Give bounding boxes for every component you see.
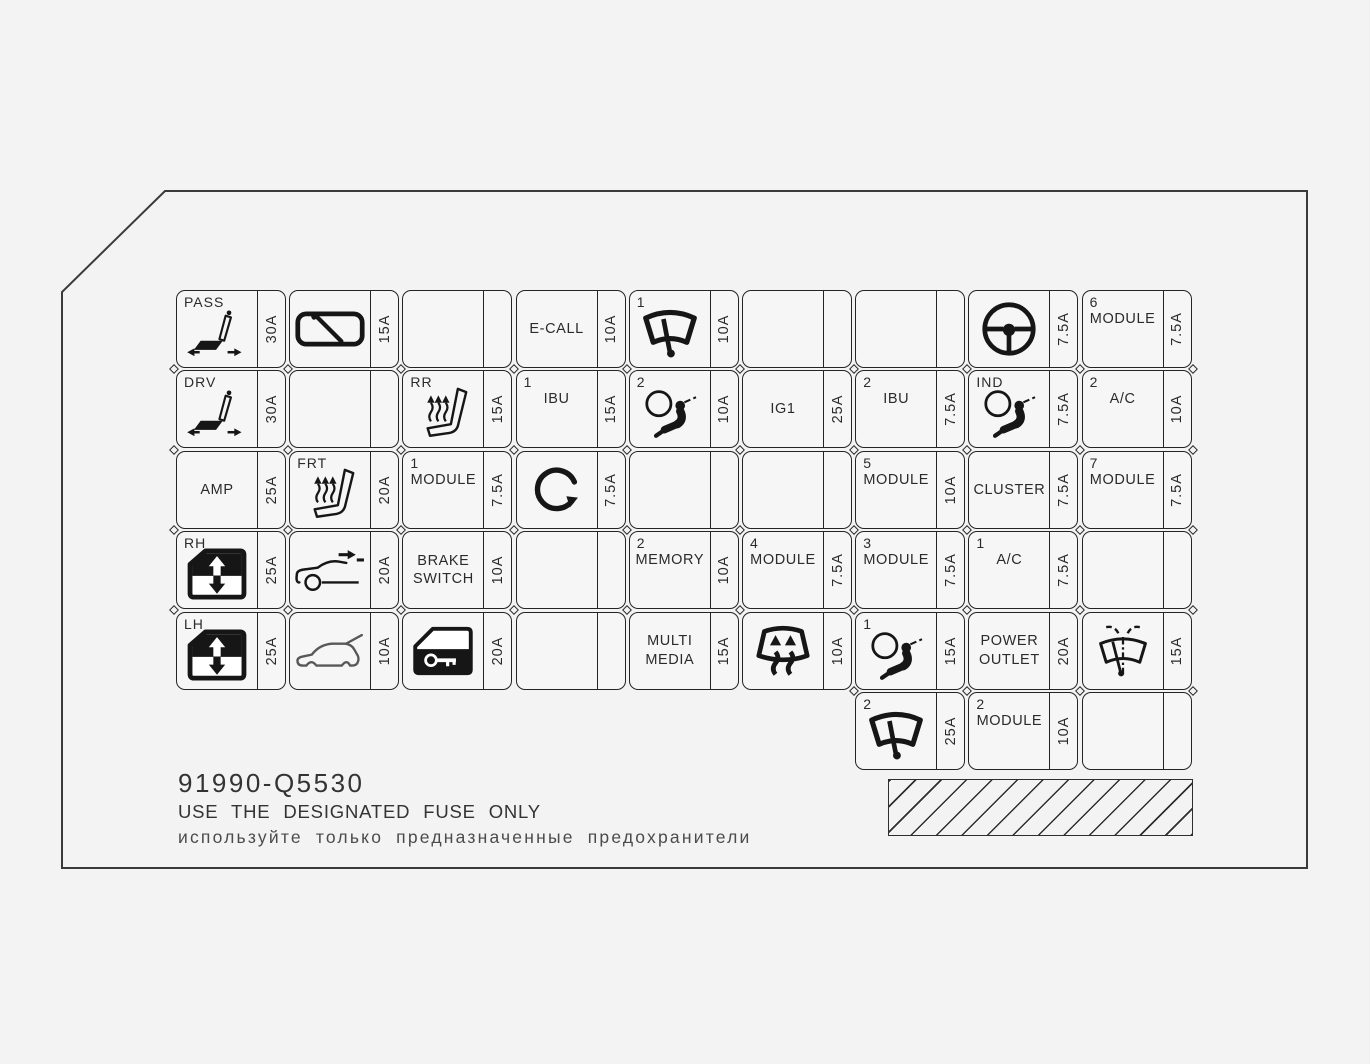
fuse-label-area: IG1 [743,371,823,447]
fuse-label: IBU [883,390,909,408]
fuse-position-tag: 4 [750,535,759,551]
fuse-amp-strip [823,291,851,367]
fuse-amp-strip: 7.5A [936,371,964,447]
fuse-cell: 20A [289,531,399,609]
fuse-amp-strip: 7.5A [1049,291,1077,367]
heated-seat-icon [304,467,356,521]
fuse-position-tag: IND [976,374,1003,390]
fuse-cell: POWER OUTLET20A [968,612,1078,690]
door-lock-icon [412,626,474,676]
fuse-amp-rating: 15A [603,395,619,424]
fuse-amp-strip [597,613,625,689]
airbag-icon [641,387,699,439]
fuse-cell: AMP25A [176,451,286,529]
fuse-position-tag: RR [410,374,432,390]
fuse-amp-strip: 25A [257,532,285,608]
fuse-amp-rating: 15A [716,636,732,665]
fuse-cell: 7.5A [968,290,1078,368]
rotation-arrow-icon [532,465,582,515]
fuse-cell: 15A [1082,612,1192,690]
fuse-amp-strip: 15A [597,371,625,447]
fuse-cell: 5MODULE10A [855,451,965,529]
fuse-cell: RH 25A [176,531,286,609]
fuse-cell: 7MODULE7.5A [1082,451,1192,529]
fuse-cell: 4MODULE7.5A [742,531,852,609]
fuse-cell [516,531,626,609]
fuse-label-area [403,291,483,367]
fuse-label-area: POWER OUTLET [969,613,1049,689]
power-window-icon [187,548,247,600]
fuse-cell: 1A/C7.5A [968,531,1078,609]
fuse-amp-strip: 10A [710,532,738,608]
fuse-cell: 1MODULE7.5A [402,451,512,529]
fuse-label: MODULE [1090,471,1156,489]
fuse-amp-rating: 25A [264,556,280,585]
fuse-amp-strip: 20A [370,452,398,528]
fuse-cell: 2 10A [629,370,739,448]
fuse-cell: 20A [402,612,512,690]
fuse-position-tag: 1 [863,616,872,632]
fuse-position-tag: 7 [1090,455,1099,471]
fuse-label-area [1083,693,1163,769]
fuse-amp-rating: 7.5A [603,473,619,507]
fuse-label: MODULE [411,471,477,489]
fuse-amp-rating: 7.5A [830,553,846,587]
rear-defrost-icon [753,624,813,678]
fuse-amp-strip [936,291,964,367]
fuse-cell [742,451,852,529]
fuse-amp-rating: 15A [943,636,959,665]
fuse-amp-strip: 10A [1049,693,1077,769]
fuse-label-area [290,613,370,689]
fuse-label-area [517,452,597,528]
fuse-amp-strip [483,291,511,367]
fuse-label-area [743,613,823,689]
fuse-cell: PASS 30A [176,290,286,368]
fuse-cell: 1 15A [855,612,965,690]
fuse-amp-strip [823,452,851,528]
fuse-amp-rating: 30A [264,315,280,344]
fuse-label-area [290,291,370,367]
fuse-amp-rating: 25A [830,395,846,424]
fuse-amp-strip [1163,693,1191,769]
fuse-cell [742,290,852,368]
fuse-amp-strip: 25A [936,693,964,769]
fuse-amp-rating: 20A [377,475,393,504]
tailgate-icon [292,631,368,671]
fuse-amp-strip: 7.5A [597,452,625,528]
fuse-amp-rating: 7.5A [1169,473,1185,507]
fuse-position-tag: 2 [976,696,985,712]
fuse-amp-rating: 30A [264,395,280,424]
fuse-label: E-CALL [529,320,583,338]
fuse-amp-strip: 10A [823,613,851,689]
fuse-cell: IG125A [742,370,852,448]
fuse-amp-strip: 25A [823,371,851,447]
fuse-label: MODULE [1090,310,1156,328]
fuse-amp-rating: 20A [377,556,393,585]
fuse-cell: IND 7.5A [968,370,1078,448]
fuse-label: MODULE [750,551,816,569]
fuse-position-tag: 3 [863,535,872,551]
fuse-cell [1082,692,1192,770]
fuse-amp-strip: 7.5A [1049,371,1077,447]
fuse-box-label: { "footer": { "part_number": "91990-Q553… [0,0,1370,1064]
fuse-amp-rating: 10A [1056,717,1072,746]
front-wiper-icon [865,707,927,763]
fuse-position-tag: RH [184,535,206,551]
fuse-cell: E-CALL10A [516,290,626,368]
hatched-area [888,779,1193,836]
fuse-amp-strip: 25A [257,613,285,689]
fuse-cell: FRT 20A [289,451,399,529]
fuse-position-tag: FRT [297,455,327,471]
power-seat-icon [186,388,248,438]
fuse-amp-rating: 10A [1169,395,1185,424]
fuse-amp-rating: 15A [1169,636,1185,665]
fuse-amp-rating: 15A [490,395,506,424]
fuse-amp-strip [710,452,738,528]
fuse-amp-strip: 10A [483,532,511,608]
fuse-label-area: AMP [177,452,257,528]
fuse-label: IBU [544,390,570,408]
fuse-cell: 7.5A [516,451,626,529]
fuse-amp-rating: 25A [264,636,280,665]
fuse-cell: 2A/C10A [1082,370,1192,448]
fuse-label-area: E-CALL [517,291,597,367]
fuse-amp-rating: 20A [1056,636,1072,665]
fuse-amp-rating: 10A [943,475,959,504]
airbag-icon [980,387,1038,439]
warning-text-ru: используйте только предназначенные предо… [178,827,751,848]
fuse-cell: LH 25A [176,612,286,690]
fuse-amp-strip: 10A [710,371,738,447]
fuse-amp-rating: 10A [716,395,732,424]
fuse-amp-strip: 30A [257,291,285,367]
fuse-amp-rating: 10A [716,556,732,585]
fuse-position-tag: 1 [410,455,419,471]
warning-text-en: USE THE DESIGNATED FUSE ONLY [178,801,541,823]
fuse-amp-rating: 7.5A [490,473,506,507]
fuse-amp-rating: 25A [943,717,959,746]
fuse-cell: RR 15A [402,370,512,448]
fuse-amp-strip: 15A [370,291,398,367]
wiper-blade-icon [294,308,366,350]
fuse-cell [402,290,512,368]
power-seat-icon [186,308,248,358]
fuse-amp-strip: 15A [1163,613,1191,689]
fuse-label: MODULE [863,551,929,569]
fuse-position-tag: 2 [637,374,646,390]
fuse-label-area: MULTI MEDIA [630,613,710,689]
fuse-amp-rating: 10A [490,556,506,585]
fuse-amp-strip: 20A [483,613,511,689]
fuse-amp-strip: 7.5A [1163,452,1191,528]
fuse-amp-strip: 15A [936,613,964,689]
fuse-label-area [630,452,710,528]
fuse-amp-rating: 10A [716,315,732,344]
fuse-cell: 2MODULE10A [968,692,1078,770]
fuse-label: AMP [200,481,233,499]
fuse-position-tag: 2 [863,696,872,712]
fuse-cell: 2 25A [855,692,965,770]
power-window-icon [187,629,247,681]
fuse-amp-rating: 7.5A [943,392,959,426]
fuse-cell [289,370,399,448]
fuse-amp-strip [1163,532,1191,608]
fuse-cell: DRV 30A [176,370,286,448]
fuse-amp-rating: 15A [377,315,393,344]
fuse-amp-strip: 10A [1163,371,1191,447]
fuse-label: POWER OUTLET [979,632,1040,668]
fuse-amp-strip: 7.5A [1049,452,1077,528]
fuse-label-area [856,291,936,367]
fuse-cell: 10A [289,612,399,690]
fuse-label-area [517,532,597,608]
fuse-label-area [969,291,1049,367]
fuse-label: MODULE [977,712,1043,730]
fuse-label-area [743,291,823,367]
fuse-amp-strip: 7.5A [823,532,851,608]
fuse-position-tag: 2 [863,374,872,390]
fuse-label: MULTI MEDIA [645,632,694,668]
fuse-label-area: BRAKE SWITCH [403,532,483,608]
fuse-position-tag: DRV [184,374,216,390]
fuse-amp-rating: 10A [830,636,846,665]
fuse-amp-rating: 7.5A [943,553,959,587]
fuse-amp-strip: 20A [370,532,398,608]
fuse-amp-strip: 10A [936,452,964,528]
fuse-cell [516,612,626,690]
car-forward-icon [293,548,367,592]
fuse-amp-rating: 7.5A [1056,553,1072,587]
fuse-amp-strip: 10A [710,291,738,367]
fuse-amp-strip: 7.5A [483,452,511,528]
fuse-label: IG1 [770,400,795,418]
fuse-position-tag: 1 [524,374,533,390]
fuse-label-area [517,613,597,689]
fuse-cell: 3MODULE7.5A [855,531,965,609]
fuse-amp-rating: 10A [603,315,619,344]
part-number: 91990-Q5530 [178,768,365,799]
fuse-amp-rating: 25A [264,475,280,504]
fuse-label: A/C [1110,390,1136,408]
fuse-amp-rating: 10A [377,636,393,665]
fuse-amp-strip: 25A [257,452,285,528]
fuse-position-tag: 1 [976,535,985,551]
steering-wheel-icon [981,301,1037,357]
fuse-label: CLUSTER [973,481,1045,499]
fuse-position-tag: 6 [1090,294,1099,310]
airbag-icon [867,629,925,681]
fuse-position-tag: PASS [184,294,224,310]
fuse-label: MODULE [863,471,929,489]
fuse-cell: 2IBU7.5A [855,370,965,448]
fuse-cell: 2MEMORY10A [629,531,739,609]
heated-seat-icon [417,386,469,440]
fuse-grid: PASS 30A 15AE-CALL10A1 10A 7.5A6MODULE7.… [176,290,1196,772]
fuse-amp-strip: 7.5A [1049,532,1077,608]
fuse-position-tag: 5 [863,455,872,471]
fuse-position-tag: 2 [637,535,646,551]
fuse-amp-strip: 7.5A [936,532,964,608]
fuse-amp-strip [597,532,625,608]
fuse-position-tag: LH [184,616,204,632]
fuse-cell: CLUSTER7.5A [968,451,1078,529]
fuse-amp-rating: 7.5A [1056,392,1072,426]
fuse-label: BRAKE SWITCH [413,552,474,588]
fuse-label-area [290,371,370,447]
fuse-amp-rating: 7.5A [1056,473,1072,507]
fuse-cell: 1 10A [629,290,739,368]
fuse-cell: BRAKE SWITCH10A [402,531,512,609]
fuse-label: A/C [996,551,1022,569]
fuse-amp-strip: 30A [257,371,285,447]
fuse-amp-rating: 7.5A [1056,312,1072,346]
fuse-amp-rating: 20A [490,636,506,665]
fuse-position-tag: 1 [637,294,646,310]
fuse-amp-strip: 10A [597,291,625,367]
fuse-cell [855,290,965,368]
fuse-label: MEMORY [636,551,705,569]
fuse-label-area: CLUSTER [969,452,1049,528]
fuse-amp-strip: 15A [483,371,511,447]
fuse-amp-rating: 7.5A [1169,312,1185,346]
front-wiper-icon [639,305,701,361]
fuse-cell: 6MODULE7.5A [1082,290,1192,368]
washer-icon [1093,623,1153,679]
fuse-amp-strip [370,371,398,447]
fuse-position-tag: 2 [1090,374,1099,390]
fuse-label-area [290,532,370,608]
fuse-cell: 10A [742,612,852,690]
fuse-cell: 1IBU15A [516,370,626,448]
fuse-cell: MULTI MEDIA15A [629,612,739,690]
fuse-amp-strip: 7.5A [1163,291,1191,367]
fuse-cell [1082,531,1192,609]
fuse-label-area [403,613,483,689]
fuse-label-area [1083,532,1163,608]
fuse-amp-strip: 10A [370,613,398,689]
fuse-cell: 15A [289,290,399,368]
fuse-amp-strip: 20A [1049,613,1077,689]
fuse-label-area [1083,613,1163,689]
fuse-cell [629,451,739,529]
fuse-amp-strip: 15A [710,613,738,689]
fuse-label-area [743,452,823,528]
